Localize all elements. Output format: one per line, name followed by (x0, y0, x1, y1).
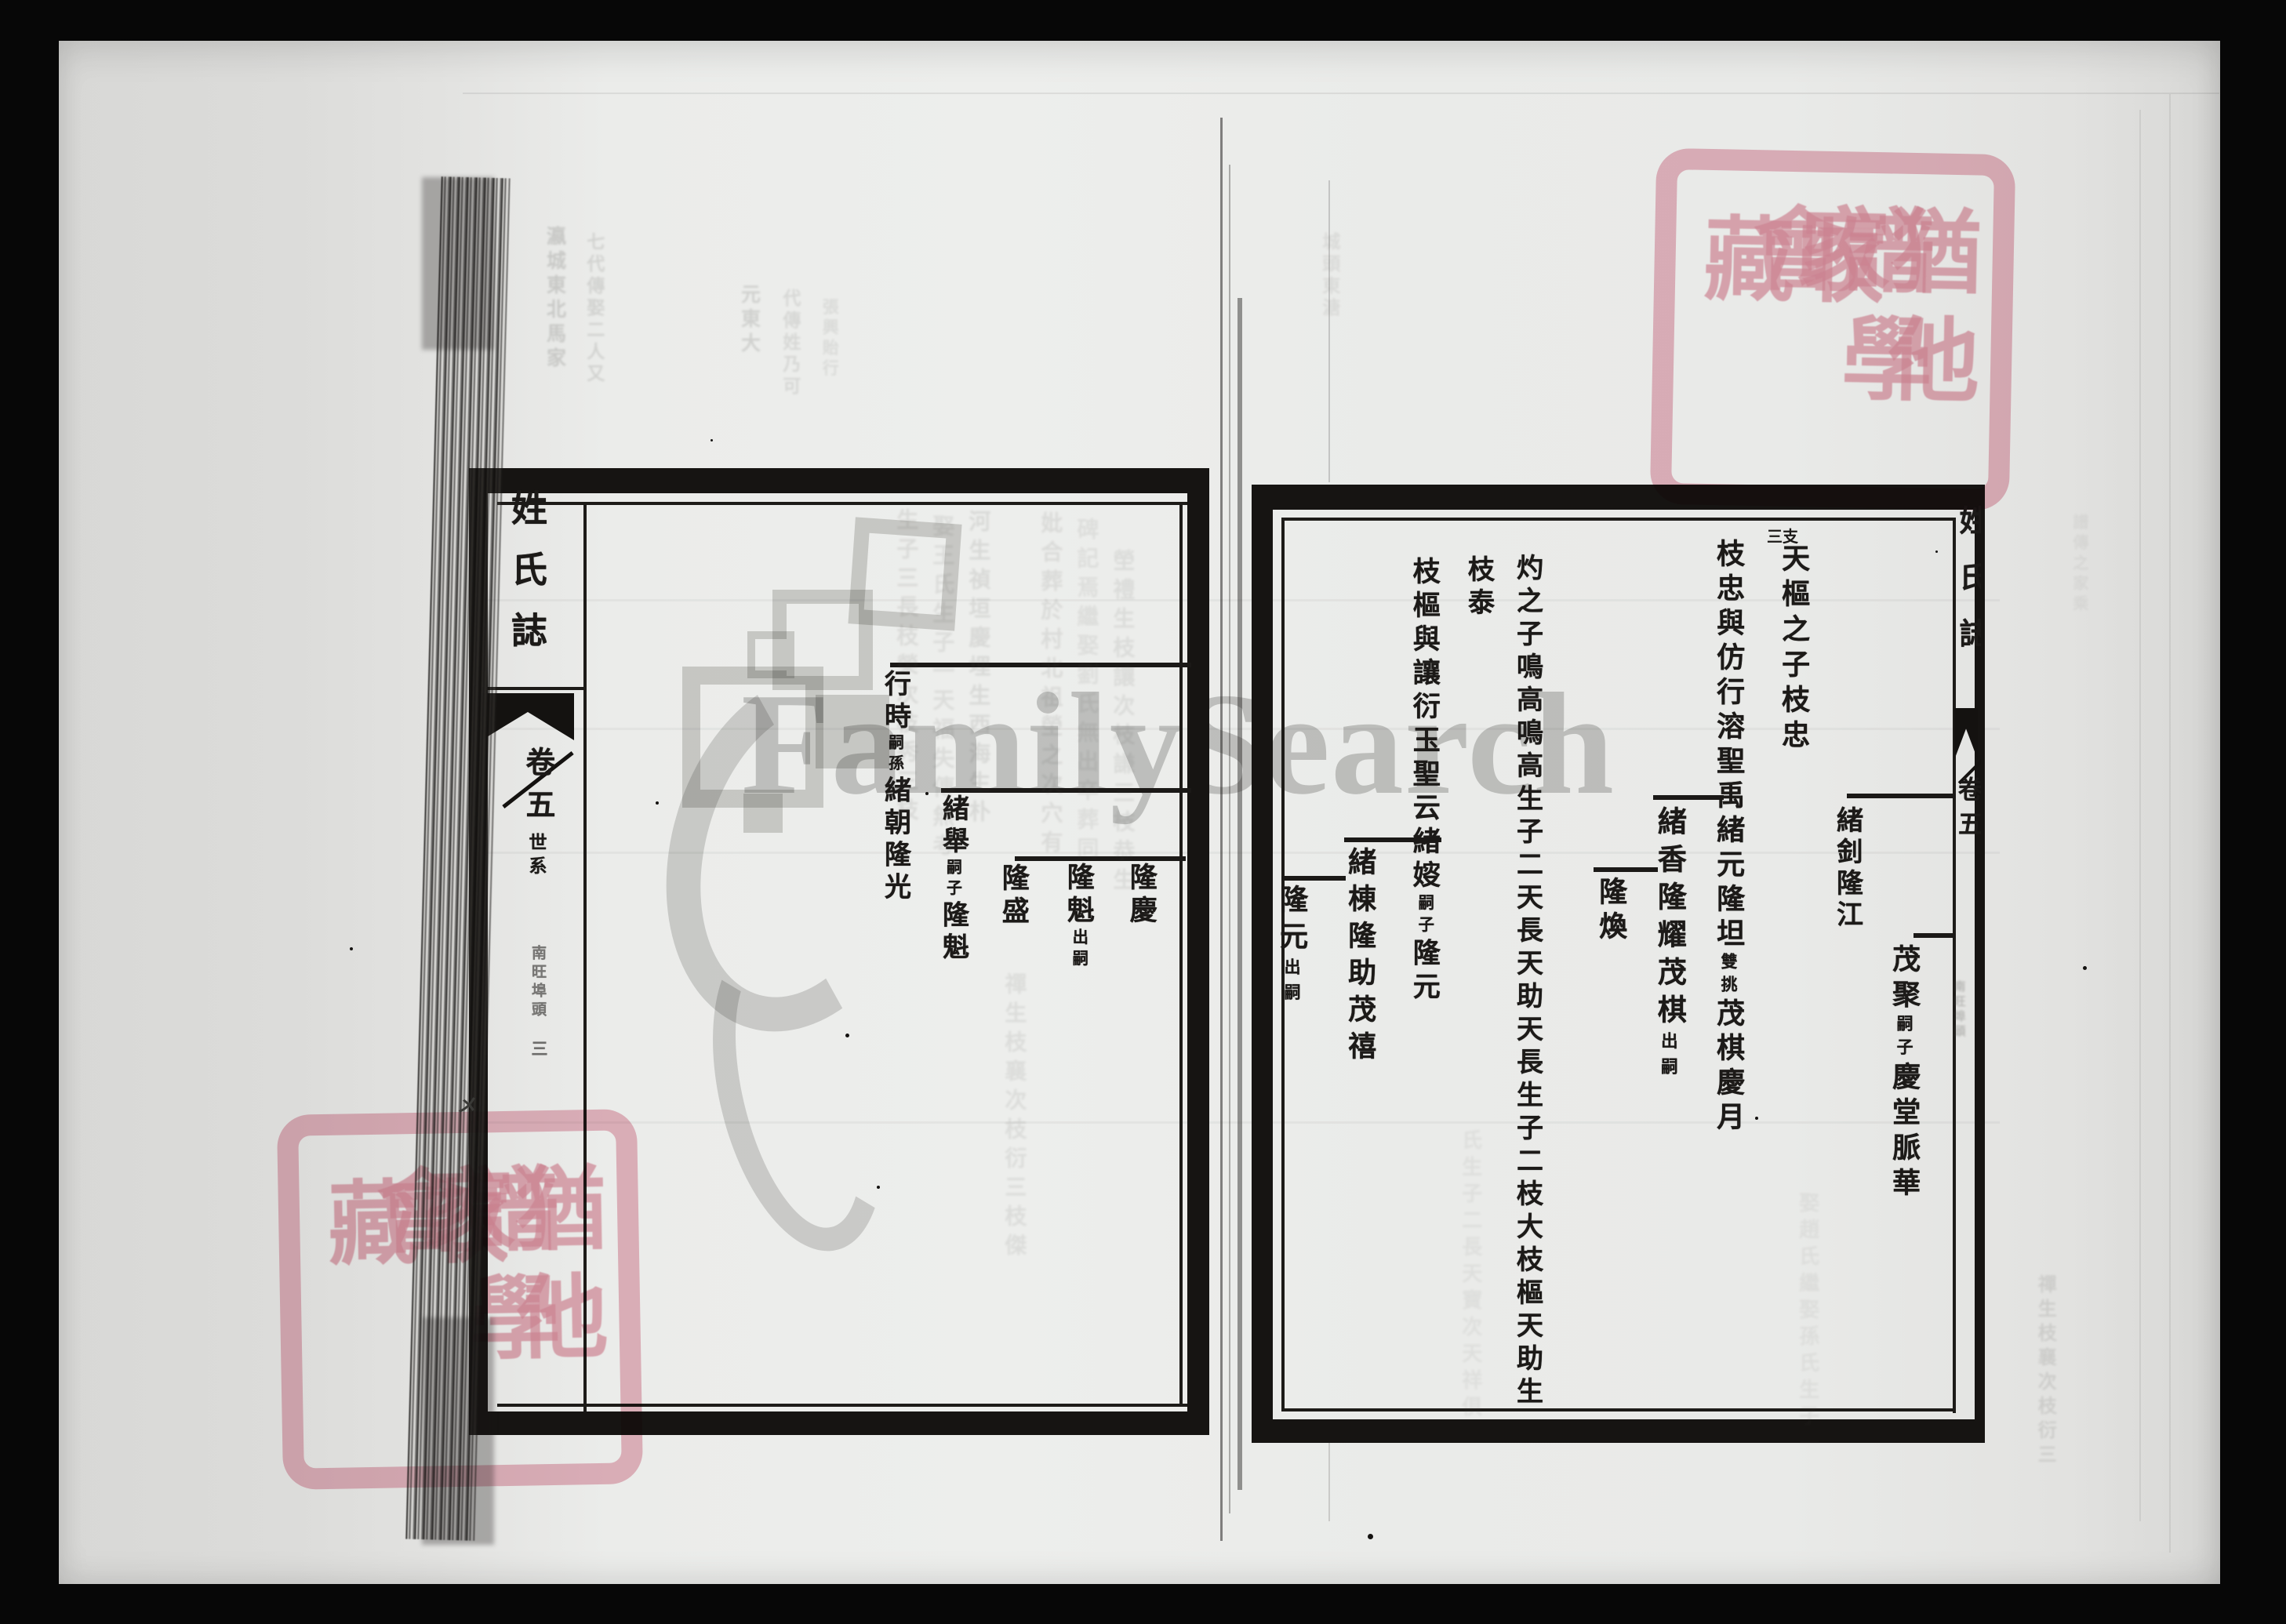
right-frame-left-border (1252, 485, 1273, 1443)
name-text: 隆魁 (939, 900, 968, 965)
name-text: 緒釗隆江 (1833, 806, 1862, 932)
genealogy-column-right-page: 緒香隆耀茂棋出嗣 (1654, 806, 1683, 1083)
ink-fleck (1935, 550, 1938, 553)
name-text: 慶堂脈華 (1888, 1062, 1920, 1203)
genealogy-column-right-page: 枝泰 (1465, 555, 1492, 621)
paper-crease (486, 599, 2000, 601)
bleed-through-text: 瀛城東北馬家 (545, 226, 565, 372)
name-text: 灼之子鳴高鳴高生子二天長天助天長生子二枝大枝樞天助生 (1513, 554, 1542, 1410)
tree-connector-line (1344, 837, 1441, 842)
name-text: 緒香隆耀茂棋 (1652, 806, 1685, 1032)
ink-fleck (925, 792, 929, 795)
bleed-through-text: 妣合葬於村北祖塋之次穴有 (1038, 511, 1060, 859)
annotation-small-text: 雙挑 (1719, 953, 1738, 998)
genealogy-column-right-page: 隆元出嗣 (1277, 885, 1306, 1008)
left-frame-right-border (1187, 468, 1209, 1435)
right-frame-inner-line (1281, 518, 1954, 521)
bleed-through-text: 塋禮生枝讓次枝謙三枝恭生 (1110, 549, 1132, 897)
genealogy-column-right-page: 枝忠與仿行溶聖禹緒元隆坦雙挑茂棋慶月 (1714, 539, 1743, 1136)
genealogy-column-right-page: 天樞之子枝忠 (1779, 543, 1808, 755)
tree-connector-line (1281, 876, 1346, 881)
spine-shadow (422, 177, 494, 350)
ink-fleck (656, 801, 659, 805)
bleed-through-text: 城頭東溏 (1321, 232, 1339, 320)
left-frame-inner-line (1179, 502, 1183, 1407)
name-text: 隆盛 (998, 863, 1029, 929)
tree-connector-line (1653, 795, 1724, 800)
tree-connector-line (1847, 794, 1955, 798)
fishtail-mark (1954, 708, 1978, 760)
bleed-through-text: 娶趙氏繼娶孫氏生子一 (1797, 1192, 1818, 1459)
annotation-small-text: 出嗣 (1070, 928, 1087, 972)
left-margin-page-number: 三 (530, 1040, 547, 1056)
annotation-small-text: 出嗣 (1659, 1032, 1677, 1083)
genealogy-column-right-page: 緒釗隆江 (1834, 806, 1860, 932)
right-margin-column: 姓氏誌 卷五 (1954, 502, 1981, 1411)
right-frame-bottom-border (1252, 1419, 1984, 1443)
left-margin-place: 南旺埠頭 (530, 945, 545, 1020)
bleed-through-text: 七代傳娶二人又 (585, 232, 603, 386)
name-text: 隆魁 (1063, 863, 1094, 928)
left-margin-volume: 卷五 (522, 747, 552, 831)
name-text: 茂聚 (1888, 944, 1920, 1015)
left-frame-top-border (469, 468, 1209, 493)
name-text: 隆煥 (1595, 877, 1626, 946)
left-margin-rule (488, 687, 585, 690)
left-margin-book-title: 姓氏誌 (508, 489, 544, 673)
genealogy-column-right-page: 枝樞與讓衍玉聖云緒㛮嗣子隆元 (1411, 557, 1438, 1006)
center-fold-line (1229, 165, 1230, 1513)
annotation-small-text: 嗣子 (944, 859, 961, 900)
bleed-through-text: 碑記焉繼娶劉氏無出卒葬同 (1074, 518, 1096, 866)
bleed-through-text: 譜傳之家乘 (2071, 514, 2087, 616)
name-text: 枝樞與讓衍玉聖云緒㛮 (1409, 557, 1440, 894)
left-frame-inner-line (497, 502, 1187, 505)
genealogy-column-right-page: 灼之子鳴高鳴高生子二天長天助天長生子二枝大枝樞天助生 (1514, 554, 1540, 1410)
paper-edge-line (2139, 110, 2141, 1521)
ink-fleck (845, 1034, 849, 1037)
genealogy-column-left-page: 隆魁出嗣 (1065, 863, 1092, 972)
spine-shadow (422, 1317, 494, 1545)
bleed-through-text: 生子三長枝榮次枝秀三枝 (894, 508, 916, 827)
name-text: 隆元 (1409, 939, 1440, 1006)
bleed-through-text: 元東大 (740, 284, 759, 357)
left-margin-section: 世系 (527, 833, 545, 880)
bleed-through-text: 禪生枝襄次枝衍三 (2035, 1274, 2054, 1469)
ink-fleck (350, 947, 353, 950)
bleed-through-text: 張興貽行 (821, 298, 838, 380)
familysearch-watermark-text: FamilySearch (741, 671, 1615, 817)
bleed-through-text: 禪生枝襄次枝衍三枝傑 (1002, 972, 1024, 1263)
right-margin-volume: 卷五 (1957, 776, 1981, 845)
bleed-through-text: 氏生子二長天寶次天祥俱 (1460, 1129, 1481, 1422)
annotation-small-text: 嗣子 (1895, 1015, 1913, 1062)
bleed-through-text: 河生禎垣慶埋生西海生朴 (966, 510, 988, 829)
ink-fleck (877, 1186, 880, 1189)
library-stamp-seal: 猶他家 譜學會 收藏 (1650, 148, 2016, 511)
name-text: 緒棟隆助茂禧 (1344, 847, 1376, 1068)
genealogy-column-right-page: 緒棟隆助茂禧 (1346, 847, 1374, 1068)
annotation-small-text: 出嗣 (1282, 958, 1301, 1008)
genealogy-column-left-page: 隆盛 (1000, 863, 1027, 929)
tree-connector-line (1594, 867, 1658, 872)
paper-crease (486, 1121, 2000, 1124)
right-margin-book-title: 姓氏誌 (1956, 505, 1981, 674)
ink-fleck (1755, 1117, 1758, 1120)
genealogy-column-right-page: 隆煥 (1597, 877, 1625, 946)
tree-connector-line (1913, 933, 1955, 938)
leaf-edge-line (1328, 1443, 1330, 1521)
branch-label: 三支 (1767, 524, 1798, 547)
name-text: 茂棋慶月 (1713, 998, 1744, 1136)
name-text: 隆元 (1276, 885, 1307, 958)
name-text: 枝忠與仿行溶聖禹緒元隆坦 (1713, 539, 1744, 953)
seal-text-column: 收藏 (1690, 211, 1877, 487)
leaf-edge-line (1328, 180, 1330, 482)
center-fold-line (1237, 298, 1242, 1490)
name-text: 天樞之子枝忠 (1778, 543, 1809, 755)
center-fold-line (1220, 118, 1223, 1541)
paper-edge-line (463, 93, 2219, 94)
ink-fleck (2083, 966, 2087, 970)
bleed-through-text: 娶王氏生子一天福失傳無考 (930, 514, 952, 863)
ink-fleck (711, 439, 713, 441)
annotation-small-text: 嗣子 (1416, 894, 1433, 939)
right-frame-inner-line (1281, 1408, 1954, 1411)
bleed-through-text: 南旺埠頭 (1953, 980, 1964, 1040)
genealogy-column-right-page: 茂聚嗣子慶堂脈華 (1890, 944, 1918, 1203)
ink-fleck (1368, 1534, 1373, 1539)
scanned-genealogy-spread: FamilySearch 姓氏誌 卷五 世系 南旺埠頭 三 姓氏誌 卷五 猶他家… (0, 0, 2286, 1624)
name-text: 枝泰 (1464, 555, 1493, 621)
bleed-through-text: 代傳姓乃可 (781, 289, 799, 398)
paper-edge-line (2169, 94, 2171, 1553)
